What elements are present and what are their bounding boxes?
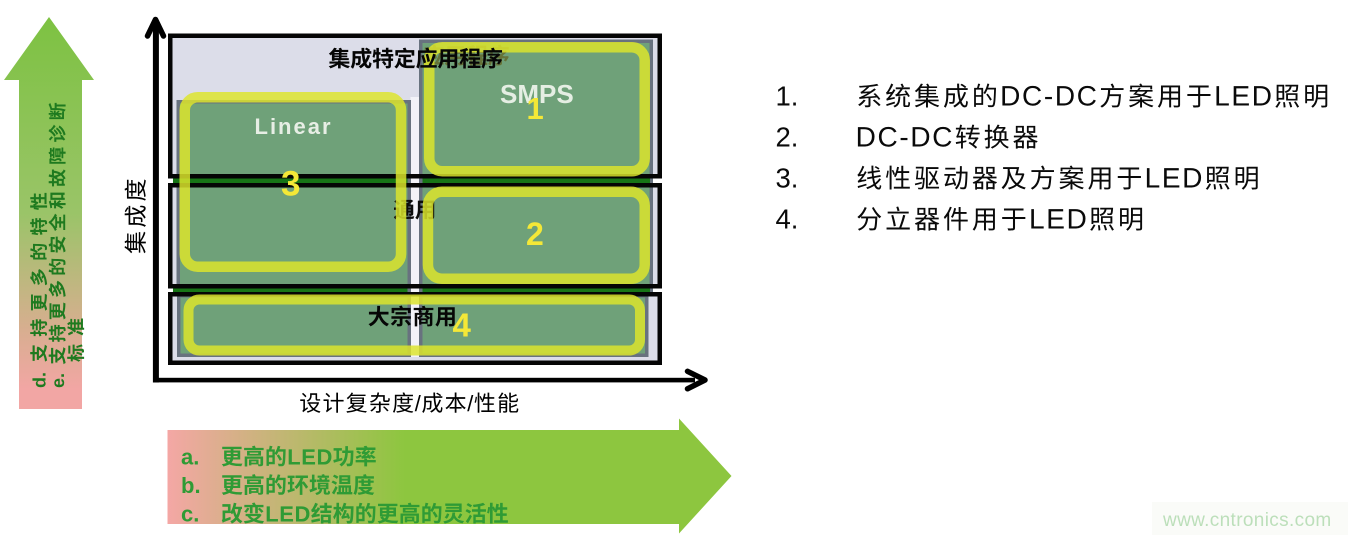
svg-text:4: 4 — [453, 307, 472, 344]
svg-text:b.: b. — [181, 473, 201, 498]
svg-text:3: 3 — [281, 165, 300, 204]
svg-text:a.: a. — [181, 445, 199, 470]
svg-text:2: 2 — [526, 216, 544, 252]
svg-text:4.: 4. — [776, 204, 799, 235]
svg-text:2.: 2. — [776, 122, 799, 153]
svg-text:1.: 1. — [776, 81, 799, 112]
svg-text:www.cntronics.com: www.cntronics.com — [1162, 510, 1332, 531]
svg-text:1: 1 — [527, 91, 544, 126]
svg-text:c.: c. — [181, 502, 199, 527]
svg-text:3.: 3. — [776, 163, 799, 194]
svg-text:Linear: Linear — [255, 114, 333, 139]
